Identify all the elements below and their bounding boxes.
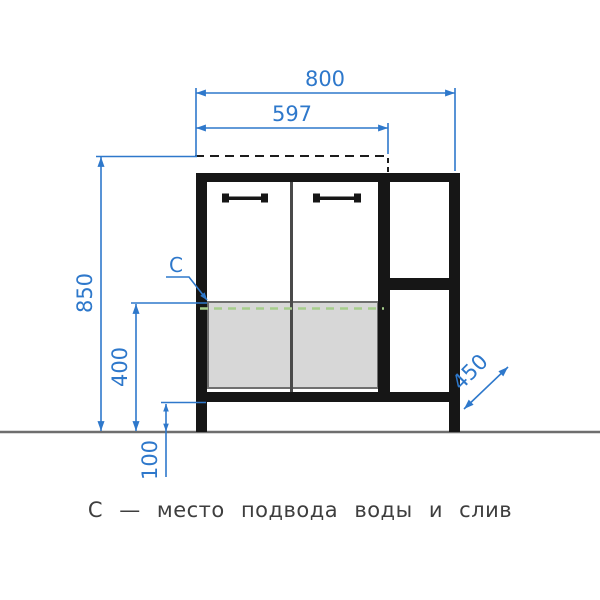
service-point-label: C (169, 253, 183, 277)
dim-service-height-value: 400 (108, 347, 132, 387)
dim-sink-width-value: 597 (272, 102, 312, 126)
cabinet-top-rail (196, 173, 460, 182)
dim-overall-height (96, 157, 197, 432)
dim-sink-width (196, 123, 388, 154)
dim-overall-width-value: 800 (305, 67, 345, 91)
cabinet-bottom-rail (196, 392, 460, 402)
door-divider-line (290, 182, 293, 392)
drawing-caption: С — место подвода воды и слив (0, 498, 600, 522)
dim-plinth-height-value: 100 (138, 440, 162, 480)
open-shelf-divider (384, 278, 456, 290)
right-door-handle-icon (313, 194, 361, 203)
dim-overall-width (196, 88, 455, 171)
dim-service-height (131, 303, 207, 431)
left-door-handle-icon (222, 194, 268, 203)
dim-overall-height-value: 850 (73, 273, 97, 313)
technical-drawing-canvas: 800 597 850 400 100 450 C (0, 0, 600, 600)
